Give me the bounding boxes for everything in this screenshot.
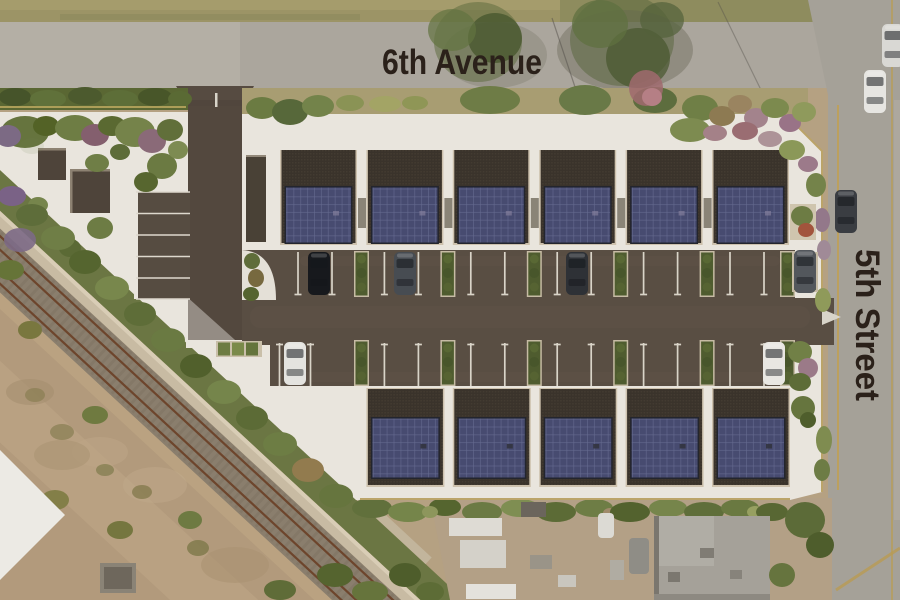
svg-text:6th Avenue: 6th Avenue <box>382 43 542 82</box>
svg-text:5th Street: 5th Street <box>848 249 886 401</box>
